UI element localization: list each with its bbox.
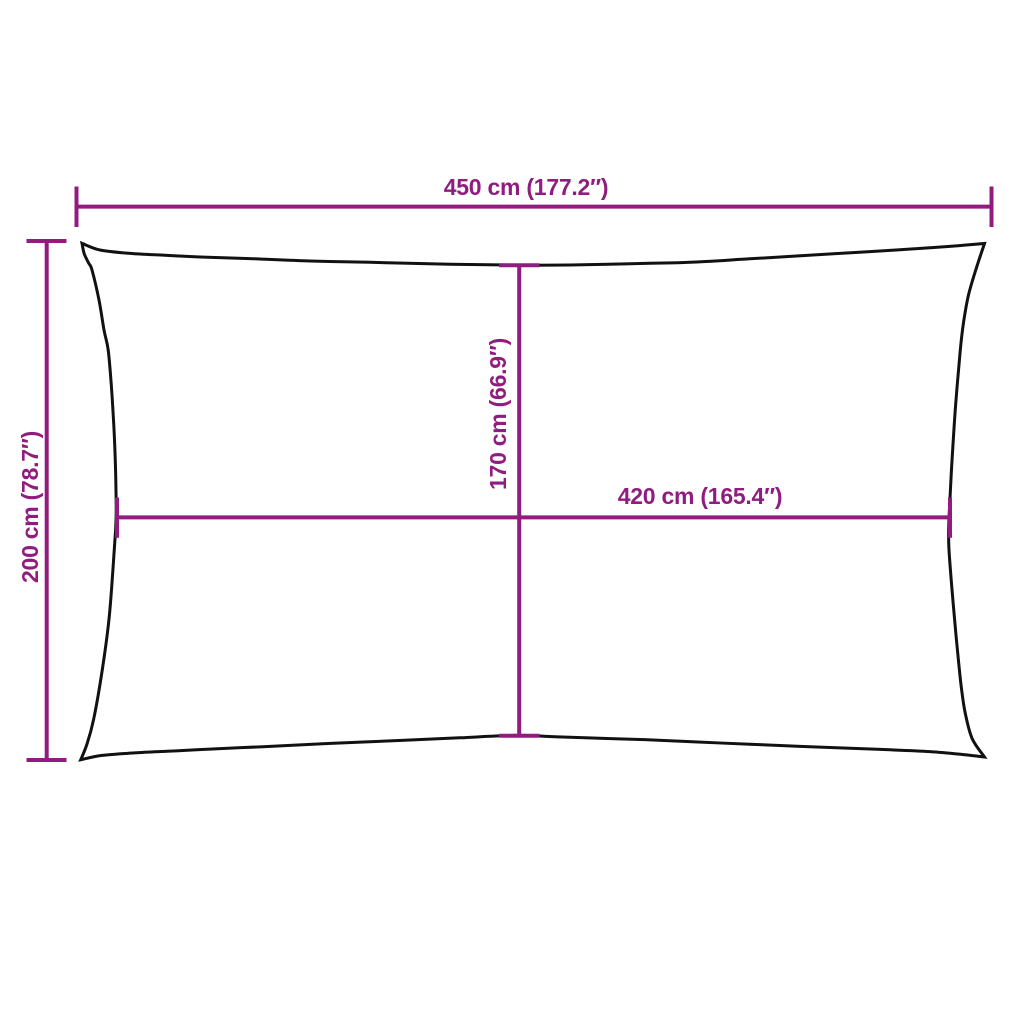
svg-text:200 cm (78.7″): 200 cm (78.7″) — [17, 431, 43, 583]
svg-text:420 cm (165.4″): 420 cm (165.4″) — [618, 483, 783, 509]
svg-text:450 cm (177.2″): 450 cm (177.2″) — [444, 174, 609, 200]
svg-text:170 cm (66.9″): 170 cm (66.9″) — [485, 338, 511, 490]
